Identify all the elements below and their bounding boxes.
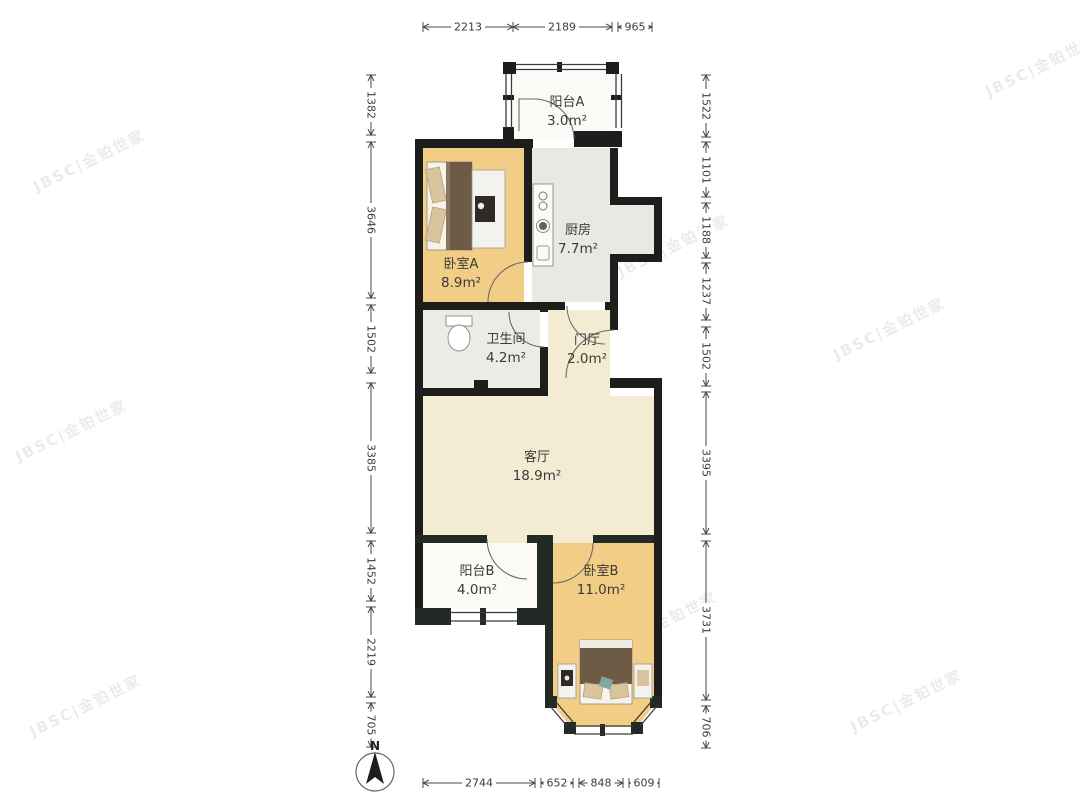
room-area: 4.0m² <box>457 581 497 599</box>
room-label-bathroom: 卫生间4.2m² <box>486 331 526 367</box>
dim-top-1: 2189 <box>545 21 579 34</box>
kitchen-niche-floor <box>610 205 654 254</box>
room-area: 3.0m² <box>547 112 587 130</box>
dim-bottom-3: 609 <box>631 777 658 790</box>
dim-right-0: 1522 <box>700 89 713 123</box>
room-label-bedroom-b: 卧室B11.0m² <box>577 563 626 599</box>
dim-left-2: 1502 <box>365 322 378 356</box>
dim-left-0: 1382 <box>365 88 378 122</box>
dim-right-2: 1188 <box>700 213 713 247</box>
room-name: 卧室A <box>441 256 481 274</box>
room-area: 4.2m² <box>486 349 526 367</box>
dim-right-6: 3731 <box>700 603 713 637</box>
dim-right-4: 1502 <box>700 339 713 373</box>
dim-right-1: 1101 <box>700 153 713 187</box>
room-label-balcony-a: 阳台A3.0m² <box>547 94 587 130</box>
dim-top-2: 965 <box>622 21 649 34</box>
dim-left-5: 2219 <box>365 635 378 669</box>
north-arrow-icon <box>356 752 394 791</box>
dim-right-5: 3395 <box>700 446 713 480</box>
north-label: N <box>370 739 380 753</box>
floor-plan-page: JBSC|金铂世家 JBSC|金铂世家 JBSC|金铂世家 JBSC|金铂世家 … <box>0 0 1080 806</box>
room-area: 7.7m² <box>558 240 598 258</box>
room-label-entry: 门厅2.0m² <box>567 332 607 368</box>
room-label-kitchen: 厨房7.7m² <box>558 222 598 258</box>
room-area: 18.9m² <box>513 467 562 485</box>
room-name: 卧室B <box>577 563 626 581</box>
room-area: 11.0m² <box>577 581 626 599</box>
dim-left-1: 3646 <box>365 203 378 237</box>
room-name: 门厅 <box>567 332 607 350</box>
dim-left-6: 705 <box>365 712 378 739</box>
dim-bottom-0: 2744 <box>462 777 496 790</box>
room-name: 卫生间 <box>486 331 526 349</box>
floor-plan-svg <box>0 0 1080 806</box>
room-label-balcony-b: 阳台B4.0m² <box>457 563 497 599</box>
toilet-icon <box>446 316 472 351</box>
dim-right-7: 706 <box>700 714 713 741</box>
bed-a-icon <box>426 162 505 250</box>
dim-bottom-2: 848 <box>588 777 615 790</box>
room-area: 8.9m² <box>441 274 481 292</box>
room-name: 客厅 <box>513 449 562 467</box>
room-label-living-room: 客厅18.9m² <box>513 449 562 485</box>
room-name: 厨房 <box>558 222 598 240</box>
dim-top-0: 2213 <box>451 21 485 34</box>
dim-right-3: 1237 <box>700 274 713 308</box>
stove-icon <box>533 184 553 266</box>
room-name: 阳台A <box>547 94 587 112</box>
room-name: 阳台B <box>457 563 497 581</box>
dim-bottom-1: 652 <box>544 777 571 790</box>
room-label-bedroom-a: 卧室A8.9m² <box>441 256 481 292</box>
dim-left-4: 1452 <box>365 554 378 588</box>
dim-left-3: 3385 <box>365 441 378 475</box>
room-area: 2.0m² <box>567 350 607 368</box>
